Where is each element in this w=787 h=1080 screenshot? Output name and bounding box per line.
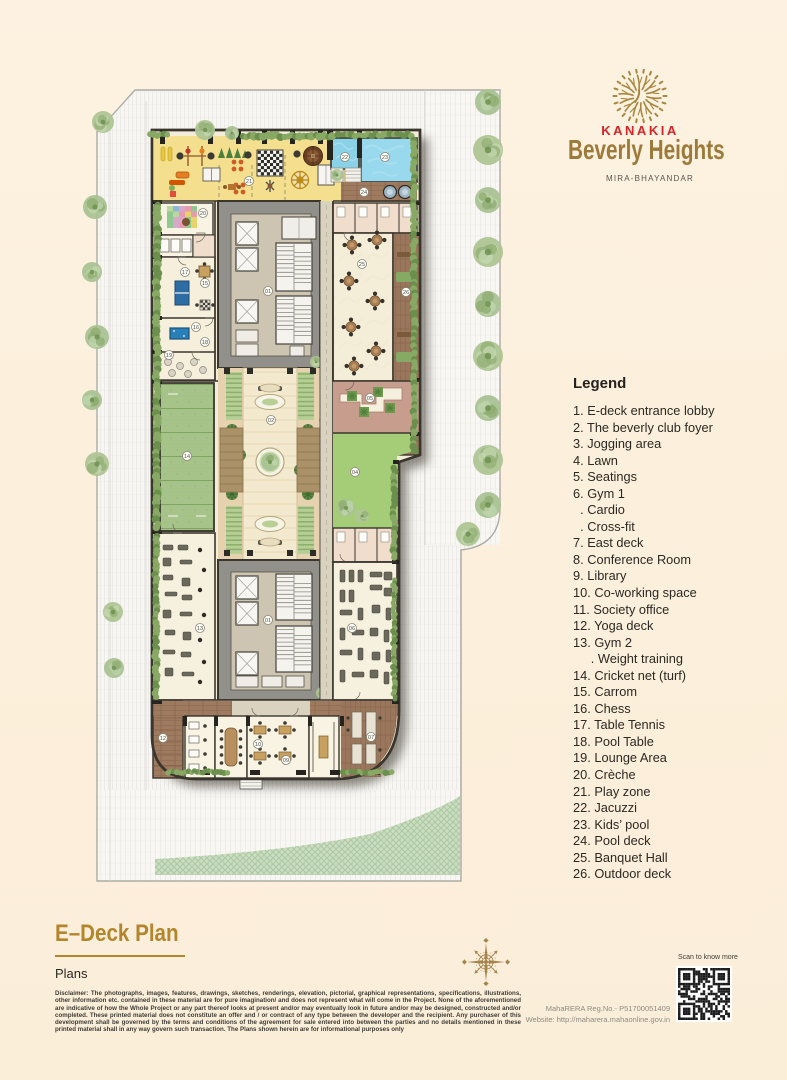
svg-text:05: 05 — [367, 396, 373, 402]
svg-text:17: 17 — [182, 270, 188, 276]
svg-text:06: 06 — [349, 626, 355, 632]
svg-text:10: 10 — [255, 742, 261, 748]
svg-text:07: 07 — [368, 735, 374, 741]
svg-text:15: 15 — [202, 281, 208, 287]
svg-text:26: 26 — [403, 290, 409, 296]
svg-text:01: 01 — [265, 618, 271, 624]
svg-text:13: 13 — [197, 626, 203, 632]
svg-text:14: 14 — [184, 454, 190, 460]
svg-text:04: 04 — [352, 470, 358, 476]
svg-text:25: 25 — [359, 262, 365, 268]
svg-text:09: 09 — [283, 758, 289, 764]
svg-text:01: 01 — [265, 289, 271, 295]
svg-text:20: 20 — [200, 211, 206, 217]
svg-text:19: 19 — [166, 353, 172, 359]
svg-text:22: 22 — [342, 155, 348, 161]
svg-text:02: 02 — [268, 418, 274, 424]
svg-text:12: 12 — [160, 736, 166, 742]
svg-text:16: 16 — [193, 325, 199, 331]
svg-text:24: 24 — [361, 190, 367, 196]
svg-text:23: 23 — [382, 155, 388, 161]
svg-text:21: 21 — [246, 179, 252, 185]
svg-text:18: 18 — [202, 340, 208, 346]
